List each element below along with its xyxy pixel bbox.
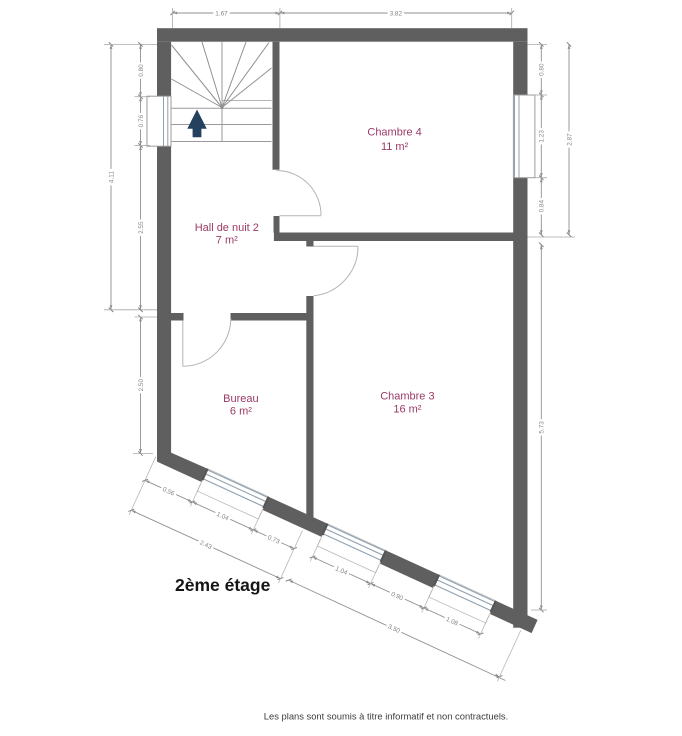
- svg-text:4.11: 4.11: [108, 171, 115, 183]
- svg-text:Hall de nuit 2: Hall de nuit 2: [195, 222, 259, 234]
- svg-text:0.80: 0.80: [539, 63, 546, 76]
- svg-text:3.82: 3.82: [390, 10, 403, 17]
- svg-text:1.23: 1.23: [539, 130, 546, 143]
- svg-text:0.80: 0.80: [138, 64, 145, 77]
- svg-text:11 m²: 11 m²: [381, 141, 409, 153]
- svg-text:Bureau: Bureau: [223, 393, 258, 405]
- svg-text:16 m²: 16 m²: [393, 404, 421, 416]
- svg-text:0.76: 0.76: [138, 114, 145, 127]
- svg-text:Les plans sont soumis à titre: Les plans sont soumis à titre informatif…: [264, 711, 508, 722]
- svg-text:Chambre 3: Chambre 3: [380, 390, 434, 402]
- svg-text:2.50: 2.50: [138, 379, 145, 392]
- svg-text:6 m²: 6 m²: [230, 406, 252, 418]
- svg-text:Chambre 4: Chambre 4: [367, 127, 421, 139]
- svg-text:7 m²: 7 m²: [216, 235, 238, 247]
- svg-text:2.87: 2.87: [566, 133, 573, 146]
- svg-text:1.67: 1.67: [215, 10, 228, 17]
- svg-text:2.55: 2.55: [138, 221, 145, 234]
- svg-text:0.84: 0.84: [539, 200, 546, 213]
- svg-text:5.73: 5.73: [539, 421, 546, 434]
- svg-text:2ème étage: 2ème étage: [175, 575, 271, 595]
